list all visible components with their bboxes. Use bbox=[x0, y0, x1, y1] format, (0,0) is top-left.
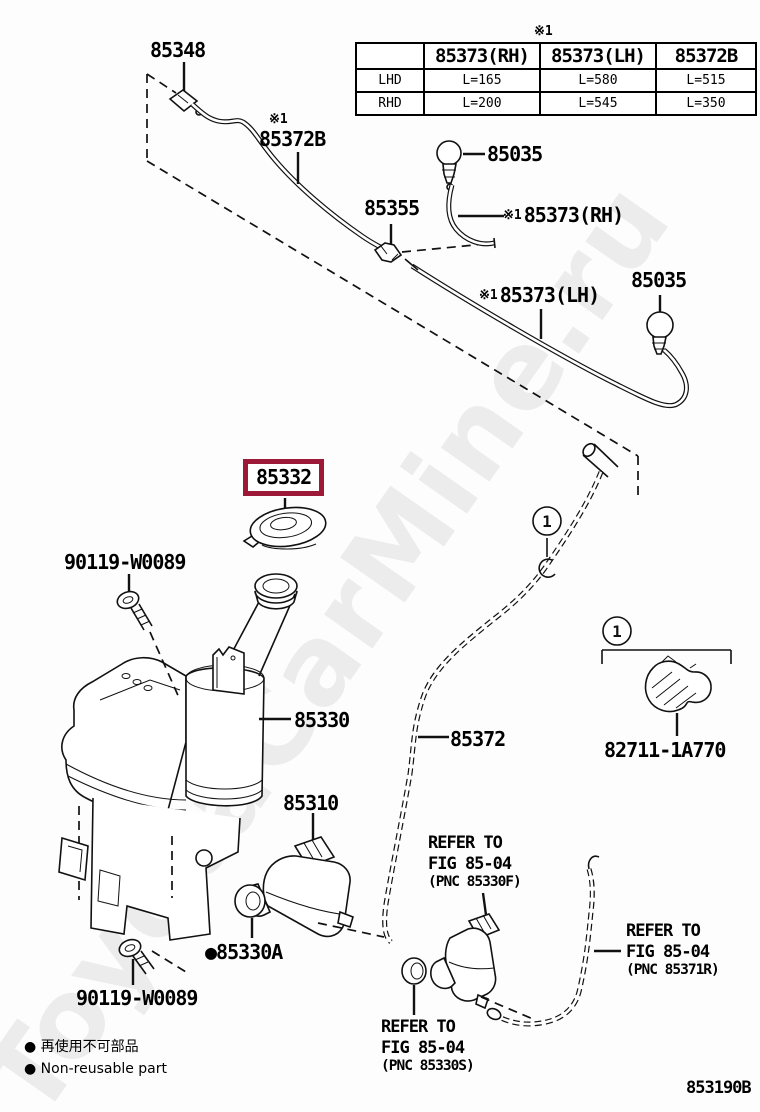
part-label-85310[interactable]: 85310 bbox=[283, 791, 338, 815]
spec-lhd-85373lh: L=580 bbox=[540, 69, 656, 92]
grommet-refer-drawing bbox=[402, 958, 426, 1015]
length-spec-table: 85373(RH) 85373(LH) 85372B LHD L=165 L=5… bbox=[355, 42, 757, 116]
spec-header-85373lh: 85373(LH) bbox=[540, 43, 656, 69]
part-label-85355[interactable]: 85355 bbox=[364, 196, 419, 220]
parts-diagram-page: ToyotaCarMine.ru bbox=[0, 0, 760, 1112]
clamp-82711-drawing bbox=[602, 650, 731, 736]
ref-mark-85373rh: ※1 bbox=[503, 208, 522, 223]
spec-rowlabel-lhd: LHD bbox=[356, 69, 424, 92]
ref-mark-85373lh: ※1 bbox=[479, 288, 498, 303]
spec-header-85372b: 85372B bbox=[656, 43, 756, 69]
ref-mark-85372b: ※1 bbox=[269, 112, 325, 127]
part-label-85035-right[interactable]: 85035 bbox=[631, 268, 686, 292]
spec-rhd-85373lh: L=545 bbox=[540, 92, 656, 115]
spec-lhd-85373rh: L=165 bbox=[424, 69, 540, 92]
svg-text:1: 1 bbox=[612, 622, 622, 641]
part-label-85372b[interactable]: ※1 85372B bbox=[259, 112, 325, 151]
part-label-85035-top[interactable]: 85035 bbox=[487, 142, 542, 166]
part-label-90119-bottom[interactable]: 90119-W0089 bbox=[76, 986, 197, 1010]
spec-lhd-85372b: L=515 bbox=[656, 69, 756, 92]
refer-note-85330f: REFER TO FIG 85-04 (PNC 85330F) bbox=[428, 833, 521, 892]
refer-note-85330s: REFER TO FIG 85-04 (PNC 85330S) bbox=[381, 1017, 474, 1076]
screw-90119-bottom-drawing bbox=[117, 937, 186, 985]
pump-refer-drawing bbox=[431, 893, 533, 1019]
non-reusable-bullet: ● bbox=[205, 940, 216, 964]
washer-tank-85330-drawing bbox=[59, 574, 297, 940]
refer-note-85371r: REFER TO FIG 85-04 (PNC 85371R) bbox=[626, 921, 719, 980]
spec-row-rhd: RHD L=200 L=545 L=350 bbox=[356, 92, 756, 115]
legend-jp: ● 再使用不可部品 bbox=[24, 1036, 167, 1058]
legend-en: ● Non-reusable part bbox=[24, 1058, 167, 1080]
highlight-box[interactable]: 85332 bbox=[243, 459, 324, 496]
part-label-85373rh[interactable]: ※185373(RH) bbox=[503, 203, 623, 227]
spec-header-blank bbox=[356, 43, 424, 69]
spec-rowlabel-rhd: RHD bbox=[356, 92, 424, 115]
figure-code: 853190B bbox=[686, 1078, 751, 1098]
part-label-82711[interactable]: 82711-1A770 bbox=[604, 738, 725, 762]
part-label-85330[interactable]: 85330 bbox=[294, 708, 349, 732]
grommet-85330A-drawing bbox=[235, 885, 265, 938]
spec-rhd-85372b: L=350 bbox=[656, 92, 756, 115]
spec-row-lhd: LHD L=165 L=580 L=515 bbox=[356, 69, 756, 92]
table-ref-mark: ※1 bbox=[534, 24, 553, 39]
part-label-85330a[interactable]: ●85330A bbox=[205, 940, 282, 964]
spec-header-85373rh: 85373(RH) bbox=[424, 43, 540, 69]
part-label-90119-top[interactable]: 90119-W0089 bbox=[64, 550, 185, 574]
svg-text:1: 1 bbox=[542, 512, 552, 531]
nozzle-85348-drawing bbox=[170, 62, 211, 120]
part-label-85373lh[interactable]: ※185373(LH) bbox=[479, 283, 599, 307]
part-label-85372[interactable]: 85372 bbox=[450, 727, 505, 751]
nozzle-85035-top-drawing bbox=[437, 141, 485, 190]
part-label-85348[interactable]: 85348 bbox=[150, 38, 205, 62]
legend-bullet-jp: ● bbox=[24, 1039, 36, 1055]
legend-bullet-en: ● bbox=[24, 1061, 36, 1077]
pump-85310-drawing bbox=[244, 813, 384, 937]
tank-cap-85332-drawing bbox=[244, 498, 328, 551]
nozzle-85035-right-drawing bbox=[647, 295, 673, 354]
legend: ● 再使用不可部品 ● Non-reusable part bbox=[24, 1036, 167, 1081]
hose-85373-rh-drawing bbox=[449, 185, 504, 248]
callout-1-hose: 1 bbox=[533, 507, 561, 535]
callout-1-clamp: 1 bbox=[603, 617, 631, 645]
spec-rhd-85373rh: L=200 bbox=[424, 92, 540, 115]
